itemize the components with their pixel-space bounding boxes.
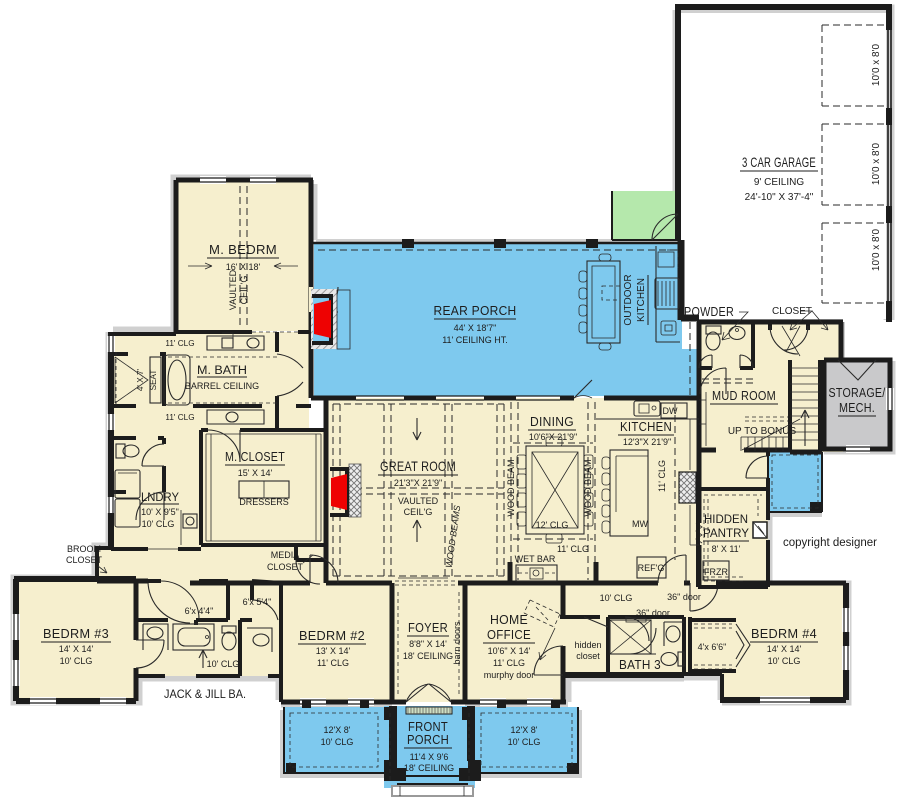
svg-text:8'8" X 14': 8'8" X 14'	[409, 639, 447, 649]
svg-text:BATH 3: BATH 3	[619, 658, 661, 672]
svg-text:10'0 x 8'0: 10'0 x 8'0	[871, 142, 882, 185]
svg-text:9' CEILING: 9' CEILING	[754, 177, 804, 188]
svg-text:10'0 x 8'0: 10'0 x 8'0	[871, 43, 882, 86]
svg-text:FRONT: FRONT	[408, 720, 448, 734]
svg-text:BROOM: BROOM	[67, 544, 101, 554]
svg-text:JACK & JILL BA.: JACK & JILL BA.	[164, 689, 246, 701]
svg-text:HOME: HOME	[490, 613, 528, 627]
svg-text:8' X 11': 8' X 11'	[712, 544, 741, 554]
svg-text:18' CEILING: 18' CEILING	[403, 651, 453, 661]
svg-text:11' CLG: 11' CLG	[165, 413, 194, 422]
svg-text:VAULTED: VAULTED	[228, 269, 238, 310]
svg-text:MW: MW	[632, 519, 648, 529]
svg-text:14' X 14': 14' X 14'	[767, 644, 802, 654]
svg-text:10'6" X 14': 10'6" X 14'	[488, 646, 531, 656]
svg-text:PANTRY: PANTRY	[703, 528, 749, 540]
svg-text:CEIL'G: CEIL'G	[404, 507, 433, 517]
svg-text:14' X 14': 14' X 14'	[59, 644, 94, 654]
svg-text:FRZR: FRZR	[704, 567, 728, 577]
svg-text:REAR PORCH: REAR PORCH	[434, 304, 517, 318]
svg-text:11' CLG: 11' CLG	[657, 460, 667, 492]
svg-text:10' X 9'5": 10' X 9'5"	[141, 507, 179, 517]
svg-text:10'6"X 21'9": 10'6"X 21'9"	[529, 432, 577, 442]
svg-text:VAULTED: VAULTED	[398, 496, 439, 506]
svg-text:10' CLG: 10' CLG	[321, 737, 354, 747]
svg-text:hidden: hidden	[574, 640, 601, 650]
svg-text:CLOSET: CLOSET	[772, 306, 812, 317]
svg-text:15' X 14': 15' X 14'	[238, 468, 273, 478]
svg-text:DRESSERS: DRESSERS	[239, 497, 289, 507]
svg-text:12'3"X 21'9": 12'3"X 21'9"	[623, 437, 671, 447]
svg-text:M. CLOSET: M. CLOSET	[225, 450, 285, 464]
svg-text:12' CLG: 12' CLG	[536, 520, 569, 530]
svg-text:GREAT ROOM: GREAT ROOM	[380, 458, 456, 474]
svg-text:11' CLG: 11' CLG	[165, 339, 194, 348]
svg-text:closet: closet	[576, 651, 600, 661]
svg-text:WOOD BEAM: WOOD BEAM	[506, 459, 516, 516]
svg-text:12'X 8': 12'X 8'	[511, 725, 538, 735]
svg-text:12'X 8': 12'X 8'	[324, 725, 351, 735]
svg-text:CLOSET: CLOSET	[66, 555, 103, 565]
svg-text:BEDRM #4: BEDRM #4	[751, 627, 817, 641]
svg-text:11'4 X 9'6: 11'4 X 9'6	[410, 752, 449, 762]
svg-text:18' CEILING: 18' CEILING	[404, 763, 454, 773]
svg-text:10' CLG: 10' CLG	[600, 593, 633, 603]
svg-text:STORAGE/: STORAGE/	[829, 386, 886, 400]
svg-text:BEDRM #3: BEDRM #3	[43, 627, 109, 641]
svg-text:M. BATH: M. BATH	[197, 365, 247, 377]
svg-text:10'0 x 8'0: 10'0 x 8'0	[871, 228, 882, 271]
svg-text:OFFICE: OFFICE	[487, 628, 531, 642]
svg-text:KITCHEN: KITCHEN	[620, 420, 672, 434]
svg-text:4' X 7': 4' X 7'	[136, 368, 145, 391]
svg-text:PORCH: PORCH	[407, 733, 449, 747]
svg-text:DW: DW	[663, 406, 678, 416]
svg-text:21'3"X 21'9": 21'3"X 21'9"	[394, 478, 442, 488]
svg-text:POWDER: POWDER	[684, 305, 734, 319]
svg-text:13' X 14': 13' X 14'	[316, 646, 351, 656]
svg-text:BARREL CEILING: BARREL CEILING	[185, 381, 259, 391]
svg-text:MEDIA: MEDIA	[271, 550, 300, 560]
svg-text:MECH.: MECH.	[839, 401, 875, 415]
svg-text:36" door: 36" door	[667, 592, 701, 602]
svg-text:10' CLG: 10' CLG	[207, 659, 240, 669]
svg-text:CLOSET: CLOSET	[267, 562, 304, 572]
svg-text:3 CAR GARAGE: 3 CAR GARAGE	[742, 154, 816, 170]
svg-text:CEIL'G: CEIL'G	[239, 276, 249, 305]
svg-text:MUD ROOM: MUD ROOM	[712, 389, 776, 403]
svg-text:UP TO BONUS: UP TO BONUS	[728, 426, 797, 437]
svg-text:HIDDEN: HIDDEN	[704, 514, 748, 526]
svg-text:BEDRM #2: BEDRM #2	[299, 629, 365, 643]
svg-text:10' CLG: 10' CLG	[142, 519, 175, 529]
svg-text:LNDRY: LNDRY	[141, 492, 179, 504]
svg-text:OUTDOOR: OUTDOOR	[623, 274, 634, 325]
svg-text:barn doors: barn doors	[452, 621, 462, 665]
svg-text:44' X 18'7": 44' X 18'7"	[454, 323, 497, 333]
svg-text:murphy door: murphy door	[484, 670, 535, 680]
svg-text:copyright designer: copyright designer	[783, 537, 877, 549]
svg-text:24'-10" X 37'-4": 24'-10" X 37'-4"	[745, 192, 814, 203]
svg-text:4'x 6'6": 4'x 6'6"	[698, 642, 727, 652]
svg-text:FOYER: FOYER	[408, 621, 448, 635]
svg-text:KITCHEN: KITCHEN	[636, 278, 647, 322]
svg-text:11' CLG: 11' CLG	[493, 658, 525, 668]
svg-text:WET BAR: WET BAR	[515, 554, 556, 564]
svg-text:11' CLG: 11' CLG	[557, 544, 589, 554]
svg-text:DINING: DINING	[530, 415, 574, 429]
svg-text:11' CLG: 11' CLG	[317, 658, 349, 668]
svg-text:WOOD BEAM: WOOD BEAM	[583, 459, 593, 516]
svg-text:36" door: 36" door	[636, 608, 670, 618]
svg-text:M. BEDRM: M. BEDRM	[209, 243, 277, 257]
svg-text:11' CEILING HT.: 11' CEILING HT.	[442, 335, 508, 345]
svg-text:SEAT: SEAT	[149, 370, 158, 391]
svg-text:6'x 5'4": 6'x 5'4"	[243, 597, 272, 607]
svg-text:REF'G: REF'G	[638, 563, 665, 573]
svg-text:10' CLG: 10' CLG	[60, 656, 93, 666]
svg-text:6'x 4'4": 6'x 4'4"	[185, 606, 214, 616]
svg-text:10' CLG: 10' CLG	[508, 737, 541, 747]
svg-text:10' CLG: 10' CLG	[768, 656, 801, 666]
